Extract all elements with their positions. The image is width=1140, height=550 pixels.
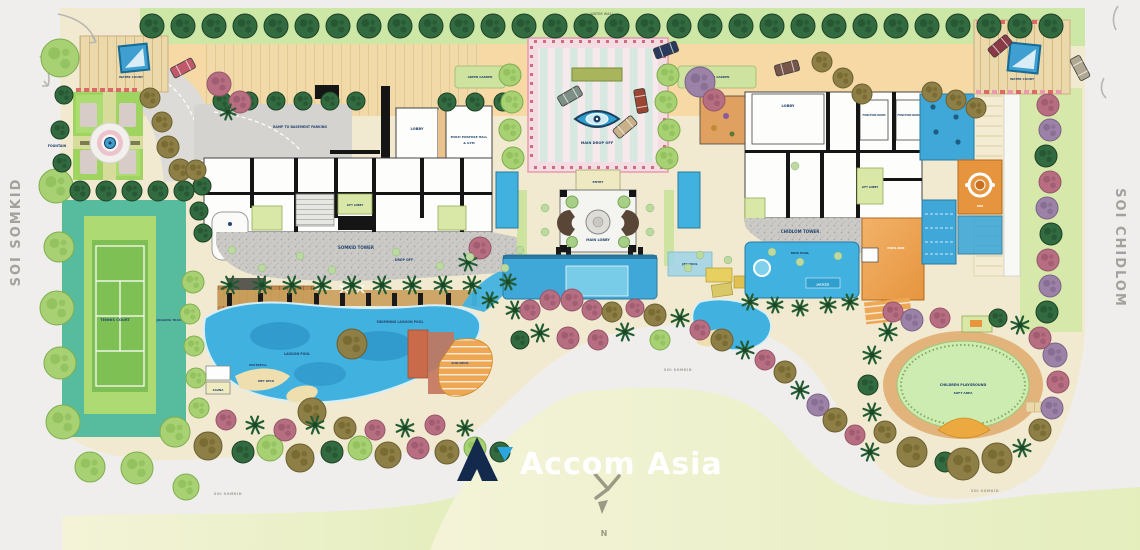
- tree-icon: [823, 408, 847, 432]
- tree-icon: [264, 14, 288, 38]
- tree-icon: [845, 425, 865, 445]
- tree-icon: [930, 308, 950, 328]
- tree-icon: [174, 181, 194, 201]
- tree-icon: [1039, 14, 1063, 38]
- bush-icon: [541, 204, 549, 212]
- bush-icon: [296, 252, 304, 260]
- pool-bar-step: [862, 248, 878, 262]
- water-court-right-label: WATER COURT: [1010, 77, 1035, 81]
- tree-icon: [582, 300, 602, 320]
- water-feature-left: [119, 44, 150, 73]
- playground-label-1: CHILDREN PLAYGROUND: [940, 383, 987, 387]
- tree-icon: [44, 232, 74, 262]
- tree-icon: [140, 88, 160, 108]
- tree-icon: [186, 160, 206, 180]
- water-wall-pool-left: [496, 172, 518, 228]
- chidlom-tower-label: CHIDLOM TOWER: [781, 229, 820, 234]
- formal-garden: [73, 92, 143, 180]
- kids-pool-label: KIDS POOL: [791, 251, 809, 255]
- street-label-chidlom: SOI CHIDLOM: [1112, 188, 1127, 308]
- tree-icon: [874, 421, 896, 443]
- waterfall-label: WATERFALL: [249, 363, 267, 367]
- bush-icon: [796, 258, 804, 266]
- tree-icon: [267, 92, 285, 110]
- tree-icon: [1036, 197, 1058, 219]
- bush-icon: [392, 248, 400, 256]
- tree-icon: [711, 329, 733, 351]
- tree-icon: [1040, 223, 1062, 245]
- water-court-left-label: WATER COURT: [119, 75, 144, 79]
- spa-label: SPA: [977, 204, 984, 208]
- tree-icon: [1008, 14, 1032, 38]
- tree-icon: [774, 361, 796, 383]
- tree-icon: [173, 474, 199, 500]
- tree-icon: [982, 443, 1012, 473]
- tree-icon: [171, 14, 195, 38]
- tree-icon: [897, 437, 927, 467]
- tree-icon: [216, 410, 236, 430]
- tree-icon: [915, 14, 939, 38]
- tree-icon: [466, 93, 484, 111]
- bush-icon: [436, 262, 444, 270]
- road-label-1: SOI SOMKID: [214, 492, 242, 496]
- tree-icon: [884, 14, 908, 38]
- tree-icon: [812, 52, 832, 72]
- drop-off-label: DROP OFF: [395, 258, 413, 262]
- tree-icon: [946, 90, 966, 110]
- tree-icon: [644, 304, 666, 326]
- tree-icon: [791, 14, 815, 38]
- tree-icon: [853, 14, 877, 38]
- tree-icon: [337, 329, 367, 359]
- street-label-somkid: SOI SOMKID: [9, 178, 24, 287]
- site-plan: WATER WALL WATER COURT FOUNTAIN TENNIS C…: [0, 0, 1140, 550]
- tree-icon: [502, 147, 524, 169]
- tree-icon: [833, 68, 853, 88]
- tree-icon: [321, 441, 343, 463]
- tree-icon: [588, 330, 608, 350]
- somkid-tower-label: SOMKID TOWER: [338, 245, 374, 250]
- lift-lobby-label: LIFT LOBBY: [347, 203, 364, 207]
- pool-bar-label: POOL BAR: [887, 246, 905, 250]
- bush-icon: [646, 204, 654, 212]
- tree-icon: [511, 331, 529, 349]
- jacuzzi-label: JACUZZI: [816, 283, 830, 287]
- road-label-2: SOI SOMKID: [664, 368, 692, 372]
- north-label: N: [601, 529, 608, 538]
- tree-icon: [348, 436, 372, 460]
- swimming-pool-label: SWIMMING LAGOON POOL: [376, 320, 423, 324]
- tree-icon: [1029, 419, 1051, 441]
- tree-icon: [44, 347, 76, 379]
- main-lobby-label: MAIN LOBBY: [586, 238, 610, 242]
- hall-label-2: & GYM: [463, 141, 474, 145]
- tree-icon: [152, 112, 172, 132]
- water-wall-label: WATER WALL: [590, 12, 613, 16]
- tree-icon: [922, 82, 942, 102]
- tree-icon: [636, 14, 660, 38]
- wet-deck-label: WET DECK: [258, 379, 275, 383]
- tree-icon: [602, 302, 622, 322]
- bush-icon: [696, 251, 704, 259]
- tree-icon: [75, 452, 105, 482]
- tree-icon: [698, 14, 722, 38]
- tree-icon: [53, 154, 71, 172]
- reflecting-pool: [503, 247, 657, 299]
- tree-icon: [184, 336, 204, 356]
- tree-icon: [357, 14, 381, 38]
- ramp-label: RAMP TO BASEMENT PARKING: [273, 125, 327, 129]
- tree-icon: [755, 350, 775, 370]
- tree-icon: [1029, 327, 1051, 349]
- tree-icon: [274, 419, 296, 441]
- tree-icon: [658, 119, 680, 141]
- tree-icon: [194, 432, 222, 460]
- tree-icon: [947, 448, 979, 480]
- function-room-label-2: FUNCTION ROOM: [898, 114, 922, 117]
- tree-icon: [901, 309, 923, 331]
- entry-label: ENTRY: [593, 180, 605, 184]
- tree-icon: [121, 452, 153, 484]
- tree-icon: [883, 302, 903, 322]
- tree-icon: [375, 442, 401, 468]
- tree-icon: [294, 92, 312, 110]
- bush-icon: [724, 256, 732, 264]
- tree-icon: [182, 271, 204, 293]
- tree-icon: [388, 14, 412, 38]
- tree-icon: [512, 14, 536, 38]
- bush-icon: [834, 252, 842, 260]
- tree-icon: [543, 14, 567, 38]
- green-garden-left-label: GREEN GARDEN: [468, 75, 493, 79]
- bush-icon: [466, 253, 474, 261]
- tree-icon: [425, 415, 445, 435]
- tree-icon: [435, 440, 459, 464]
- tree-icon: [140, 14, 164, 38]
- tree-icon: [1041, 397, 1063, 419]
- bush-icon: [768, 248, 776, 256]
- fountain-label: FOUNTAIN: [48, 144, 67, 148]
- function-room-label-1: FUNCTION ROOM: [863, 114, 887, 117]
- main-drop-off-label: MAIN DROP OFF: [581, 141, 614, 145]
- tree-icon: [540, 290, 560, 310]
- pool-hut: [206, 366, 230, 380]
- tree-icon: [1047, 371, 1069, 393]
- tree-icon: [157, 136, 179, 158]
- tree-icon: [190, 202, 208, 220]
- tree-icon: [760, 14, 784, 38]
- lobby-right-label: LOBBY: [781, 104, 794, 108]
- tree-icon: [39, 169, 73, 203]
- tree-icon: [407, 437, 429, 459]
- tree-icon: [202, 14, 226, 38]
- tennis-court-label: TENNIS COURT: [100, 318, 130, 322]
- tree-icon: [1037, 94, 1059, 116]
- tree-icon: [499, 119, 521, 141]
- lagoon-pool-label: LAGOON POOL: [284, 352, 310, 356]
- bush-icon: [328, 266, 336, 274]
- bush-icon: [516, 246, 524, 254]
- road-label-3: SOI SOMKID: [971, 489, 999, 493]
- watermark-brand: Accom Asia: [520, 447, 723, 482]
- tree-icon: [194, 224, 212, 242]
- tree-icon: [667, 14, 691, 38]
- tree-icon: [326, 14, 350, 38]
- tree-icon: [501, 91, 523, 113]
- tree-icon: [160, 417, 190, 447]
- tree-icon: [822, 14, 846, 38]
- tree-icon: [295, 14, 319, 38]
- lift-lobby-right-label: LIFT LOBBY: [862, 185, 879, 189]
- tree-icon: [419, 14, 443, 38]
- tree-icon: [55, 86, 73, 104]
- bush-icon: [791, 162, 799, 170]
- lobby-left-label: LOBBY: [410, 127, 423, 131]
- tree-icon: [334, 417, 356, 439]
- playground-label-2: SOFT AREA: [954, 391, 974, 395]
- tree-icon: [46, 405, 80, 439]
- tree-icon: [499, 64, 521, 86]
- tree-icon: [858, 375, 878, 395]
- water-feature-right: [1008, 43, 1041, 74]
- tree-icon: [1036, 301, 1058, 323]
- tree-icon: [690, 320, 710, 340]
- tree-icon: [207, 72, 231, 96]
- tree-icon: [40, 291, 74, 325]
- tree-icon: [96, 181, 116, 201]
- bush-icon: [258, 264, 266, 272]
- tree-icon: [438, 93, 456, 111]
- sauna-label: SAUNA: [213, 388, 225, 392]
- tree-icon: [561, 289, 583, 311]
- tree-icon: [122, 181, 142, 201]
- water-wall-pool-right: [678, 172, 700, 228]
- tree-icon: [41, 39, 79, 77]
- tree-icon: [1039, 275, 1061, 297]
- tree-icon: [520, 300, 540, 320]
- tree-icon: [321, 92, 339, 110]
- jogging-track-label: JOGGING TRACK: [156, 318, 185, 322]
- tree-icon: [989, 309, 1007, 327]
- tree-icon: [1039, 171, 1061, 193]
- tree-icon: [70, 181, 90, 201]
- pool-bridge: [408, 330, 428, 378]
- tree-icon: [946, 14, 970, 38]
- tree-icon: [655, 91, 677, 113]
- hall-label-1: MULTI PURPOSE HALL: [451, 135, 488, 139]
- tree-icon: [703, 89, 725, 111]
- bush-icon: [646, 228, 654, 236]
- bush-icon: [684, 264, 692, 272]
- tree-icon: [1039, 119, 1061, 141]
- tree-icon: [966, 98, 986, 118]
- tree-icon: [977, 14, 1001, 38]
- bush-icon: [501, 264, 509, 272]
- tree-icon: [347, 92, 365, 110]
- tree-icon: [626, 299, 644, 317]
- jacuzzi-icon: [754, 260, 770, 276]
- site-plan-svg: WATER WALL WATER COURT FOUNTAIN TENNIS C…: [0, 0, 1140, 550]
- tree-icon: [1037, 249, 1059, 271]
- tree-icon: [148, 181, 168, 201]
- tree-icon: [657, 64, 679, 86]
- tree-icon: [189, 398, 209, 418]
- bush-icon: [228, 246, 236, 254]
- tree-icon: [481, 14, 505, 38]
- bush-icon: [541, 228, 549, 236]
- tree-icon: [650, 330, 670, 350]
- tree-icon: [656, 147, 678, 169]
- tree-icon: [557, 327, 579, 349]
- tree-icon: [180, 304, 200, 324]
- tree-icon: [233, 14, 257, 38]
- tree-icon: [574, 14, 598, 38]
- tree-icon: [605, 14, 629, 38]
- sun-deck-label: SUN DECK: [451, 361, 469, 365]
- tree-icon: [450, 14, 474, 38]
- tree-icon: [286, 444, 314, 472]
- tree-icon: [1035, 145, 1057, 167]
- main-lobby-hall: [557, 190, 639, 252]
- tree-icon: [852, 84, 872, 104]
- tree-icon: [186, 368, 206, 388]
- tree-icon: [51, 121, 69, 139]
- tree-icon: [365, 420, 385, 440]
- tree-icon: [232, 441, 254, 463]
- tree-icon: [729, 14, 753, 38]
